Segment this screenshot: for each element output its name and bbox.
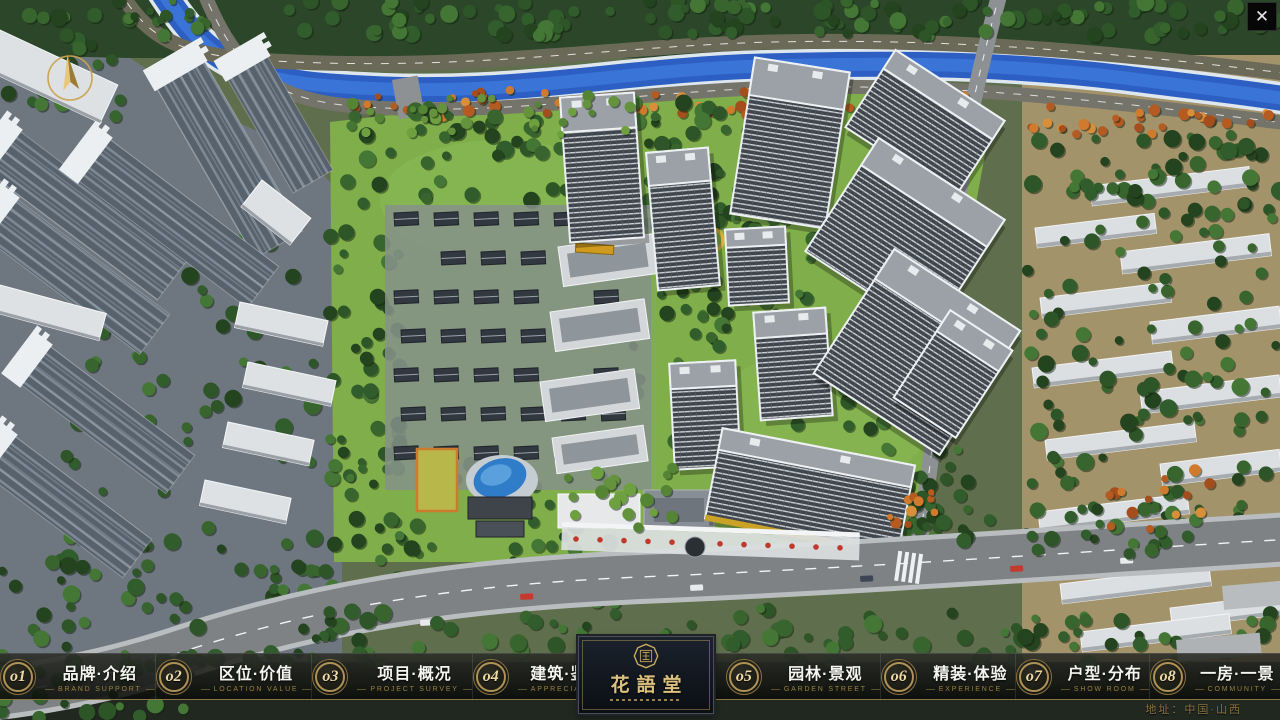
nav-item-labels: 区位·价值 LOCATION VALUE [201,660,312,693]
nav-item-o1[interactable]: o1 品牌·介绍 BRAND SUPPORT [0,654,156,699]
nav-item-label-cn: 精装·体验 [933,660,1007,684]
nav-item-o8[interactable]: o8 一房·一景 COMMUNITY [1150,654,1280,699]
project-logo-panel[interactable]: 花語堂 [578,636,714,714]
nav-item-labels: 户型·分布 SHOW ROOM [1061,660,1149,693]
nav-item-o2[interactable]: o2 区位·价值 LOCATION VALUE [156,654,313,699]
nav-item-number: o6 [891,668,907,686]
nav-item-label-cn: 品牌·介绍 [63,660,137,684]
nav-item-number-badge: o2 [156,659,192,695]
villa-area [385,205,658,490]
close-icon: ✕ [1255,8,1269,25]
nav-item-label-en: PROJECT SURVEY [357,686,471,693]
nav-item-number: o3 [322,668,338,686]
compass-north-indicator [42,46,98,106]
nav-group-left: o1 品牌·介绍 BRAND SUPPORT o2 区位·价值 LOCATION… [0,654,617,699]
nav-item-number: o8 [1160,668,1176,686]
nav-item-labels: 园林·景观 GARDEN STREET [771,660,880,693]
nav-item-o7[interactable]: o7 户型·分布 SHOW ROOM [1016,654,1150,699]
nav-item-o6[interactable]: o6 精装·体验 EXPERIENCE [881,654,1016,699]
nav-item-label-en: GARDEN STREET [771,686,880,693]
nav-item-label-en: EXPERIENCE [926,686,1015,693]
nav-item-number: o2 [166,668,182,686]
nav-item-o5[interactable]: o5 园林·景观 GARDEN STREET [726,654,881,699]
nav-item-number-badge: o7 [1016,659,1052,695]
logo-subtitle-ornament [610,699,682,701]
nav-item-label-en: LOCATION VALUE [201,686,312,693]
nav-item-label-cn: 一房·一景 [1200,660,1274,684]
nav-item-number-badge: o3 [312,659,348,695]
nav-item-label-en: COMMUNITY [1195,686,1280,693]
nav-item-number: o7 [1026,668,1042,686]
nav-group-right: o5 园林·景观 GARDEN STREET o6 精装·体验 EXPERIEN… [726,654,1280,699]
presentation-stage: ✕ o1 品牌·介绍 BRAND SUPPORT o2 区位·价值 LOCATI… [0,0,1280,720]
project-address: 地址：中国·山西 [1145,701,1242,717]
nav-item-label-cn: 区位·价值 [219,660,293,684]
nav-item-number-badge: o4 [473,659,509,695]
nav-item-label-cn: 项目·概况 [377,660,451,684]
aerial-site-plan-viewport[interactable] [0,0,1280,720]
nav-item-label-en: SHOW ROOM [1061,686,1149,693]
close-button[interactable]: ✕ [1247,2,1277,31]
seal-emblem-icon [633,643,659,669]
nav-item-labels: 项目·概况 PROJECT SURVEY [357,660,471,693]
nav-item-number: o1 [10,668,26,686]
nav-item-o3[interactable]: o3 项目·概况 PROJECT SURVEY [312,654,472,699]
project-logo-name: 花語堂 [603,670,688,697]
nav-item-label-en: BRAND SUPPORT [45,686,155,693]
nav-item-labels: 一房·一景 COMMUNITY [1195,660,1280,693]
nav-item-label-cn: 户型·分布 [1068,660,1142,684]
nav-item-label-cn: 园林·景观 [788,660,862,684]
nav-item-number-badge: o8 [1150,659,1186,695]
nav-item-number-badge: o5 [726,659,762,695]
nav-item-labels: 精装·体验 EXPERIENCE [926,660,1015,693]
nav-item-number: o5 [736,668,752,686]
nav-item-number: o4 [483,668,499,686]
nav-item-number-badge: o1 [0,659,36,695]
nav-item-labels: 品牌·介绍 BRAND SUPPORT [45,660,155,693]
nav-item-number-badge: o6 [881,659,917,695]
